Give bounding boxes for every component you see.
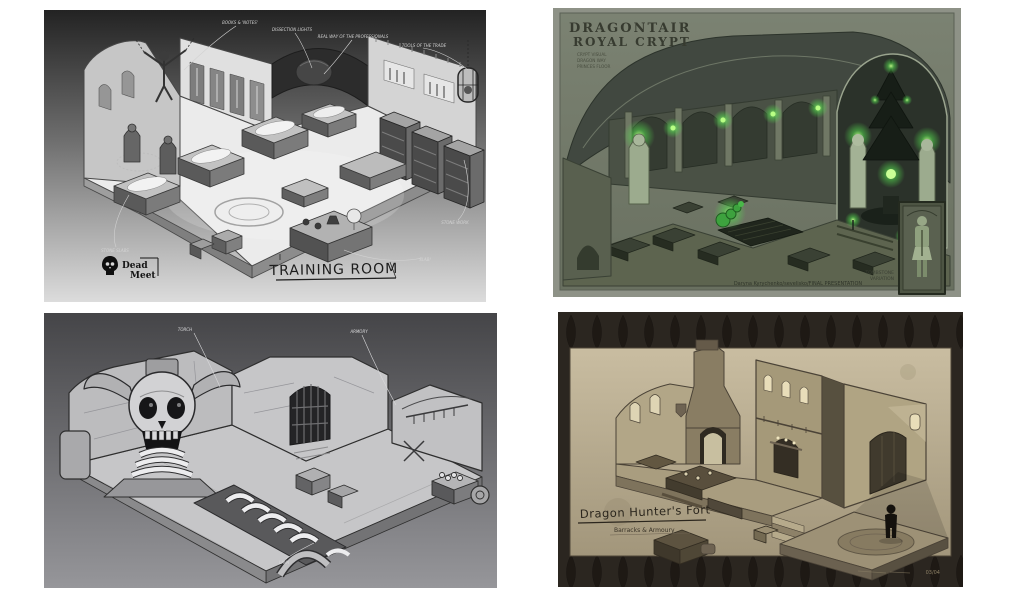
- annotation-books: BOOKS & 'NOTES': [222, 20, 258, 25]
- royal-crypt-illustration: [563, 32, 950, 294]
- panel-training-room: BOOKS & 'NOTES' DISSECTION LIGHTS REAL W…: [44, 10, 486, 302]
- tombstone-inset: [899, 202, 945, 294]
- annotation-armory: ARMORY: [349, 329, 368, 334]
- panel-skull-dungeon: TORCH ARMORY LAVA: [44, 313, 497, 588]
- training-room-artwork: BOOKS & 'NOTES' DISSECTION LIGHTS REAL W…: [44, 10, 486, 302]
- crypt-subtitle-line2: DRAGON WAY: [577, 58, 606, 63]
- annotation-stone-work: STONE WORK: [441, 220, 469, 225]
- fort-subtitle: Barracks & Armoury: [614, 527, 675, 534]
- logo-text-dead: Dead: [122, 261, 148, 271]
- crypt-subtitle-line3: PRINCES FLOOR: [577, 64, 611, 69]
- panel-hunters-fort: Dragon Hunter's Fort Barracks & Armoury …: [558, 312, 963, 587]
- crypt-title-line1: DRAGONTAIR: [569, 21, 691, 36]
- training-room-title: TRAINING ROOM: [268, 261, 398, 279]
- crypt-subtitle-line1: CRYPT VISUAL: [577, 52, 607, 57]
- annotation-lava: LAVA: [279, 560, 289, 565]
- crypt-credit: Daryna Kyrychenko/sevelisko/FINAL PRESEN…: [734, 281, 863, 287]
- annotation-torch: TORCH: [178, 327, 192, 332]
- fort-corner-note: 03/04: [926, 570, 940, 576]
- annotation-tools: TOOLS OF THE TRADE: [402, 43, 447, 48]
- annotation-lights: DISSECTION LIGHTS: [272, 27, 313, 32]
- inset-label-line2: VARIATION: [870, 276, 894, 282]
- annotation-slab: SLAB!: [419, 257, 431, 262]
- concept-art-collage: BOOKS & 'NOTES' DISSECTION LIGHTS REAL W…: [0, 0, 1024, 597]
- hunters-fort-artwork: Dragon Hunter's Fort Barracks & Armoury …: [558, 312, 963, 587]
- annotation-real-way: REAL WAY OF THE PROFESSIONALS: [318, 34, 389, 39]
- crypt-title-line2: ROYAL CRYPT: [573, 35, 691, 49]
- inset-label-line1: TOMBSTONE: [864, 270, 894, 276]
- annotation-stone-slabs: STONE SLABS: [101, 248, 129, 253]
- skull-dungeon-artwork: TORCH ARMORY LAVA: [44, 313, 497, 588]
- panel-royal-crypt: DRAGONTAIR ROYAL CRYPT CRYPT VISUAL DRAG…: [553, 8, 961, 297]
- royal-crypt-artwork: DRAGONTAIR ROYAL CRYPT CRYPT VISUAL DRAG…: [553, 8, 961, 297]
- logo-text-meet: Meet: [130, 271, 156, 281]
